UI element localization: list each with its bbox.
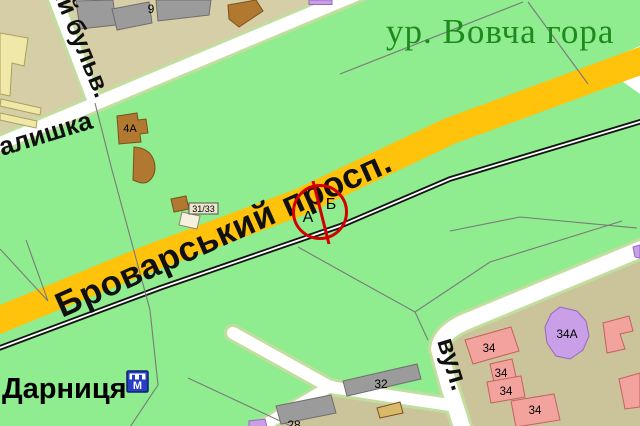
building-small: [171, 196, 189, 212]
building-label-34: 34: [529, 405, 542, 417]
marker-letter-b: Б: [326, 196, 337, 213]
building-label-28: 28: [287, 418, 301, 426]
marker-letter-a: А: [303, 209, 314, 226]
building-label-9: 9: [148, 2, 155, 16]
building-label-34a: 34А: [556, 327, 577, 341]
building-sliver: [309, 0, 332, 5]
station-icon-window: [132, 375, 135, 380]
building-label-34: 34: [500, 386, 513, 398]
station-name-label: Дарниця: [2, 373, 127, 405]
map-viewport[interactable]: Броварський просп. ий бульв. алишка вул.…: [0, 0, 640, 426]
building-label-34: 34: [483, 343, 496, 355]
building-label-4a: 4А: [123, 123, 137, 135]
building-label-31-33: 31/33: [192, 204, 215, 214]
building-label-34: 34: [495, 368, 508, 380]
station-icon[interactable]: М: [127, 371, 148, 392]
map-canvas[interactable]: Броварський просп. ий бульв. алишка вул.…: [0, 0, 640, 426]
station-icon-window: [139, 375, 142, 380]
station-icon-letter: М: [133, 380, 142, 392]
building-label-32: 32: [374, 377, 388, 391]
tract-name-label: ур. Вовча гора: [386, 12, 614, 51]
station-icon-roof: [130, 374, 146, 380]
